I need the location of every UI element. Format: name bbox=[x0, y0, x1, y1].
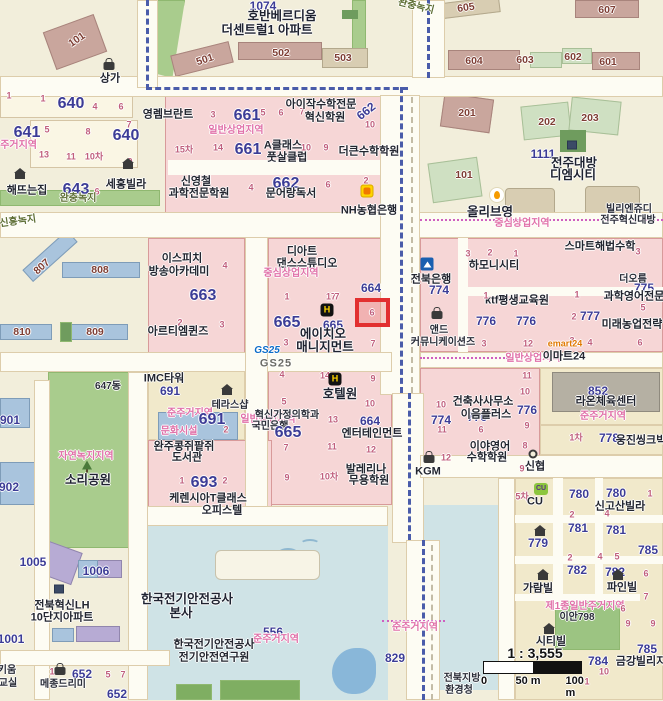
place-label: 스마트해법수학 bbox=[565, 242, 636, 253]
parcel-number: 777 bbox=[580, 310, 600, 322]
place-label: 수학학원 bbox=[467, 453, 507, 464]
place-label: 혁신가정의학과 bbox=[255, 411, 319, 421]
place-label: 전기안전연구원 bbox=[179, 653, 250, 664]
place-label: 엔터테인먼트 bbox=[342, 429, 403, 440]
place-label: 소리공원 bbox=[65, 474, 111, 487]
parcel-number: 14 bbox=[213, 144, 223, 153]
road-gs25[interactable] bbox=[0, 352, 392, 372]
place-label: 오피스텔 bbox=[202, 506, 242, 517]
building-number: 101 bbox=[455, 170, 473, 181]
road-water-top[interactable] bbox=[148, 506, 388, 526]
parcel-number: 11 bbox=[66, 153, 76, 162]
parcel-number: 4 bbox=[92, 103, 97, 112]
lh-building bbox=[76, 626, 120, 642]
place-label: 미래농업전략 bbox=[602, 320, 663, 331]
parcel-number: 4 bbox=[604, 510, 609, 519]
parcel-number: 6 bbox=[325, 181, 330, 190]
hotel-icon: H bbox=[329, 373, 342, 386]
scale-tick-0: 0 bbox=[481, 675, 487, 687]
boundary-dashed-line bbox=[146, 0, 149, 90]
parcel-number: 9 bbox=[323, 144, 328, 153]
lane[interactable] bbox=[515, 556, 663, 564]
parcel-number: 6 bbox=[643, 570, 648, 579]
parcel-number: 641 bbox=[14, 125, 41, 141]
parcel-number: 2 bbox=[571, 313, 576, 322]
parcel-number: 5 bbox=[260, 109, 265, 118]
parcel-number: 1006 bbox=[83, 565, 110, 577]
lane[interactable] bbox=[515, 594, 640, 601]
place-label: CU bbox=[527, 497, 543, 508]
boundary-dashed-line bbox=[146, 87, 408, 90]
place-label: 과학전문학원 bbox=[169, 189, 230, 200]
scale-tick-50: 50 m bbox=[515, 675, 540, 687]
place-label: 매니지먼트 bbox=[296, 341, 354, 354]
place-label: 세홍빌라 bbox=[106, 180, 146, 191]
map-canvas[interactable]: { "scale": {"ratio": "1 : 3,555", "tick0… bbox=[0, 0, 663, 700]
place-label: 호텔원 bbox=[323, 388, 358, 401]
place-label: 웅진씽크빅 bbox=[616, 436, 663, 447]
place-label: 디아트 bbox=[287, 247, 317, 258]
parcel-number: 776 bbox=[516, 315, 536, 327]
parcel-number: 10 bbox=[520, 388, 530, 397]
parcel-number: 779 bbox=[528, 537, 548, 549]
parcel-number: 829 bbox=[385, 652, 405, 664]
parcel-number: 782 bbox=[567, 564, 587, 576]
parcel-number: 4 bbox=[222, 262, 227, 271]
parcel-number: 12 bbox=[523, 340, 533, 349]
parcel-number: 691 bbox=[160, 385, 180, 397]
nh-icon bbox=[361, 185, 374, 198]
place-label: 디엠시티 bbox=[550, 169, 596, 182]
place-label: 키움 bbox=[0, 666, 16, 676]
place-label: 호반베르디움 bbox=[247, 10, 316, 23]
bldg-icon bbox=[54, 585, 64, 594]
parcel-number: 7 bbox=[283, 444, 288, 453]
pond bbox=[332, 648, 376, 694]
campus-building bbox=[215, 550, 320, 580]
place-label: 전북지방 bbox=[444, 674, 481, 684]
place-label: 이스피치 bbox=[162, 254, 202, 265]
house-icon bbox=[123, 163, 133, 169]
parcel-number: 652 bbox=[107, 688, 127, 700]
place-label: NH농협은행 bbox=[341, 206, 397, 217]
place-label: 신협 bbox=[525, 462, 545, 473]
parcel-number: 12 bbox=[366, 446, 376, 455]
parcel-number: 780 bbox=[606, 487, 626, 499]
house-icon bbox=[538, 574, 548, 580]
place-label: 이안798 bbox=[559, 613, 594, 623]
parcel-number: 11 bbox=[327, 443, 337, 452]
parcel-number: 3 bbox=[465, 250, 470, 259]
place-label: A클래스 bbox=[264, 141, 302, 152]
zone-label: 중심상업지역 bbox=[494, 219, 549, 229]
green-plot bbox=[60, 322, 72, 342]
hotel-icon: H bbox=[321, 304, 334, 317]
boundary-dashed-line bbox=[408, 393, 411, 540]
place-label: 파인빌 bbox=[607, 583, 637, 594]
building bbox=[530, 52, 562, 68]
parcel-number: 5 bbox=[44, 126, 49, 135]
parcel-number: 4 bbox=[597, 553, 602, 562]
parcel-number: 1 bbox=[647, 490, 652, 499]
parcel-number: 3 bbox=[635, 248, 640, 257]
place-label: 더큰수학학원 bbox=[339, 147, 400, 158]
parcel-number: 774 bbox=[429, 284, 449, 296]
place-label: KGM bbox=[415, 467, 441, 478]
house-icon bbox=[544, 628, 554, 634]
parcel-number: 640 bbox=[58, 96, 85, 112]
place-label: 한국전기안전공사 bbox=[141, 593, 233, 606]
parcel-number: 661 bbox=[234, 108, 261, 124]
parcel-number: 6 bbox=[620, 605, 625, 614]
parcel-number: 6 bbox=[278, 109, 283, 118]
place-label: 10단지아파트 bbox=[31, 613, 94, 624]
parcel-number: 901 bbox=[0, 414, 20, 426]
lane[interactable] bbox=[553, 478, 563, 610]
parcel-number: 10 bbox=[365, 400, 375, 409]
parcel-number: 9 bbox=[370, 375, 375, 384]
place-label: 케렌시아T클래스 bbox=[169, 494, 247, 505]
lh-building bbox=[52, 628, 74, 642]
parcel-number: 9 bbox=[625, 620, 630, 629]
place-label: IMC타워 bbox=[144, 374, 184, 385]
scale-indicator: 1 : 3,555 0 50 m 100 m bbox=[480, 644, 600, 690]
parcel-number: 1 bbox=[179, 477, 184, 486]
parcel-number: 691 bbox=[199, 412, 226, 428]
scale-ratio: 1 : 3,555 bbox=[507, 645, 562, 661]
parcel-number: 781 bbox=[568, 522, 588, 534]
bag-icon bbox=[432, 311, 443, 319]
place-label: 무용학원 bbox=[349, 476, 389, 487]
emart24-logo: emart24 bbox=[548, 340, 583, 349]
building-number: 607 bbox=[598, 5, 616, 16]
gs25-logo: GS25 bbox=[254, 346, 280, 356]
bag-icon bbox=[55, 667, 66, 675]
place-label: 금강빌리지 bbox=[616, 657, 663, 668]
building-number: 604 bbox=[465, 56, 483, 67]
parcel-number: 3 bbox=[481, 340, 486, 349]
parcel-number: 665 bbox=[274, 315, 301, 331]
place-label: 이마트24 bbox=[543, 352, 586, 363]
parcel-number: 640 bbox=[113, 128, 140, 144]
wave-mark bbox=[300, 539, 320, 549]
place-label: 신영철 bbox=[181, 177, 211, 188]
parcel-number: 9 bbox=[524, 422, 529, 431]
green-plot bbox=[342, 10, 358, 19]
parcel-number: 781 bbox=[606, 524, 626, 536]
parcel-number: 2 bbox=[487, 249, 492, 258]
parcel-number: 9 bbox=[519, 465, 524, 474]
parcel-number: 4 bbox=[587, 339, 592, 348]
parcel-number: 2 bbox=[223, 426, 228, 435]
parcel-number: 5 bbox=[281, 398, 286, 407]
parcel-number: 664 bbox=[361, 282, 381, 294]
parcel-number: 4 bbox=[248, 184, 253, 193]
building-number: 809 bbox=[86, 327, 104, 338]
zone-label: 완충녹지 bbox=[60, 194, 97, 204]
parcel-number: 5 bbox=[614, 553, 619, 562]
parcel-number: 15차 bbox=[175, 146, 193, 155]
road-bottom-left[interactable] bbox=[0, 650, 170, 666]
parcel-number: 2 bbox=[569, 511, 574, 520]
building bbox=[448, 50, 520, 70]
building-number: 203 bbox=[581, 113, 599, 124]
zone-label: 제1종일반주거지역 bbox=[545, 602, 624, 612]
house-icon bbox=[613, 574, 623, 580]
parcel-number: 664 bbox=[360, 415, 380, 427]
place-label: 건축사사무소 bbox=[453, 397, 514, 408]
sports-field bbox=[176, 684, 212, 700]
building-number: 603 bbox=[516, 55, 534, 66]
parcel-number: 665 bbox=[275, 425, 302, 441]
parcel-number: 4 bbox=[279, 371, 284, 380]
place-label: 앤드 bbox=[430, 326, 448, 336]
parcel-number: 1 bbox=[483, 292, 488, 301]
road-mid-horizontal[interactable] bbox=[0, 212, 663, 238]
parcel-number: 5 bbox=[105, 671, 110, 680]
road-center-line bbox=[411, 97, 413, 393]
parcel-number: 1 bbox=[6, 92, 11, 101]
parcel-number: 902 bbox=[0, 481, 19, 493]
house-icon bbox=[222, 389, 232, 395]
parcel-number: 693 bbox=[191, 475, 218, 491]
parcel-number: 10차 bbox=[85, 153, 103, 162]
parcel-number: 3 bbox=[283, 339, 288, 348]
place-label: 전북혁신LH bbox=[34, 601, 89, 612]
zone-label: 문화시설 bbox=[161, 427, 198, 437]
place-label: 커뮤니케이션즈 bbox=[411, 338, 475, 348]
place-label: 올리브영 bbox=[467, 206, 513, 219]
house-icon bbox=[535, 530, 545, 536]
parcel-number: 2 bbox=[222, 477, 227, 486]
parcel-number: 13 bbox=[328, 416, 338, 425]
place-label: 가람빌 bbox=[523, 584, 553, 595]
parcel-number: 11 bbox=[522, 372, 532, 381]
parcel-number: 12 bbox=[441, 454, 451, 463]
building-number: 601 bbox=[599, 57, 617, 68]
place-label: 하모니시티 bbox=[469, 261, 520, 272]
parcel-number: 13 bbox=[39, 151, 49, 160]
place-label: GS25 bbox=[260, 359, 292, 370]
place-label: 더센트럴1 아파트 bbox=[222, 24, 313, 37]
scale-bar-dark bbox=[533, 662, 582, 673]
place-label: 라온체육센터 bbox=[576, 397, 637, 408]
cu-icon: CU bbox=[534, 483, 548, 495]
parcel-number: 3 bbox=[219, 321, 224, 330]
jb-icon bbox=[421, 258, 434, 271]
lane[interactable] bbox=[595, 478, 603, 595]
building-number: 503 bbox=[334, 53, 352, 64]
oy-icon bbox=[489, 187, 505, 203]
parcel-number: 1 bbox=[284, 293, 289, 302]
parcel-number: 7 bbox=[126, 121, 131, 130]
place-label: 아이작수학전문 bbox=[286, 100, 357, 111]
parcel-number: 10 bbox=[599, 668, 609, 677]
zone-dotted-line bbox=[420, 357, 508, 359]
place-label: 빌리엔쥬디 bbox=[606, 205, 652, 215]
place-label: 문어랑독서 bbox=[266, 189, 317, 200]
parcel-number: 2 bbox=[567, 554, 572, 563]
parcel-number: 776 bbox=[517, 404, 537, 416]
boundary-dashed-line bbox=[400, 87, 403, 393]
parcel-number: 9 bbox=[284, 474, 289, 483]
building-number: 502 bbox=[272, 48, 290, 59]
building-number: 202 bbox=[538, 117, 556, 128]
parcel-number: 3 bbox=[210, 111, 215, 120]
parcel-number: 11 bbox=[437, 426, 447, 435]
parcel-number: 1005 bbox=[20, 556, 47, 568]
flower-icon bbox=[529, 450, 538, 459]
building-number: 201 bbox=[458, 108, 476, 119]
parcel-number: 1 bbox=[574, 291, 579, 300]
house-icon bbox=[15, 173, 25, 179]
parcel-number: 8 bbox=[522, 442, 527, 451]
parcel-number: 1 bbox=[40, 95, 45, 104]
zone-label: 중심상업지역 bbox=[263, 269, 318, 279]
place-label: 과학영어전문 bbox=[604, 292, 663, 303]
place-label: 테라스샵 bbox=[212, 401, 249, 411]
parcel-number: 776 bbox=[476, 315, 496, 327]
place-label: 한국전기안전공사 bbox=[174, 640, 255, 651]
parcel-number: 7 bbox=[120, 671, 125, 680]
place-label: 해뜨는집 bbox=[7, 186, 47, 197]
place-label: 상가 bbox=[100, 74, 120, 85]
parcel-number: 9 bbox=[650, 620, 655, 629]
bag-icon bbox=[424, 455, 435, 463]
tree-icon bbox=[82, 461, 92, 470]
parcel-number: 1001 bbox=[0, 633, 24, 645]
bldg-icon bbox=[567, 141, 577, 150]
sports-field bbox=[220, 680, 300, 700]
place-label: 신고산빌라 bbox=[595, 502, 646, 513]
parcel-number: 7 bbox=[334, 293, 339, 302]
place-label: 혁신학원 bbox=[305, 113, 345, 124]
parcel-number: 6 bbox=[637, 339, 642, 348]
parcel-number: 6 bbox=[369, 309, 374, 318]
place-label: 647동 bbox=[95, 382, 121, 392]
place-label: 메종드리미 bbox=[40, 680, 86, 690]
parcel-number: 661 bbox=[235, 142, 262, 158]
parcel-number: 10 bbox=[365, 121, 375, 130]
place-label: ktf평생교육원 bbox=[485, 296, 549, 307]
zone-label: 준주거지역 bbox=[392, 623, 438, 633]
place-label: 환경청 bbox=[445, 686, 473, 696]
zone-label: 일반상업지역 bbox=[208, 126, 263, 136]
road-663-665[interactable] bbox=[245, 238, 268, 525]
building-number: 808 bbox=[91, 265, 109, 276]
parcel-number: 8 bbox=[85, 128, 90, 137]
parcel-number: 1차 bbox=[569, 434, 582, 443]
parcel-number: 5 bbox=[640, 304, 645, 313]
place-label: 풋살클럽 bbox=[267, 153, 307, 164]
place-label: 영렘브란트 bbox=[143, 110, 194, 121]
parcel-number: 10차 bbox=[320, 473, 338, 482]
parcel-number: 7 bbox=[643, 593, 648, 602]
place-label: 전주혁신대방 bbox=[600, 216, 655, 226]
zone-label: 준주거지역 bbox=[0, 141, 37, 151]
place-label: 본사 bbox=[169, 607, 192, 620]
place-label: 이음플러스 bbox=[461, 410, 512, 421]
scale-bar bbox=[483, 661, 582, 674]
parcel-number: 6 bbox=[478, 426, 483, 435]
parcel-number: 6 bbox=[118, 103, 123, 112]
place-label: 아르티엠퀸즈 bbox=[148, 327, 209, 338]
bag-icon bbox=[104, 62, 115, 70]
scale-tick-100: 100 m bbox=[566, 675, 589, 699]
parcel-number: 663 bbox=[190, 288, 217, 304]
place-label: 도서관 bbox=[172, 453, 202, 464]
zone-label: 준주거지역 bbox=[253, 635, 299, 645]
building-number: 605 bbox=[457, 2, 476, 15]
building-number: 810 bbox=[13, 327, 31, 338]
building-number: 602 bbox=[564, 52, 582, 63]
parcel-number: 780 bbox=[569, 488, 589, 500]
parcel-number: 10 bbox=[436, 401, 446, 410]
parcel-number: 1 bbox=[513, 250, 518, 259]
place-label: 에이치오 bbox=[300, 328, 346, 341]
lane[interactable] bbox=[515, 515, 663, 523]
parcel-number: 7 bbox=[370, 340, 375, 349]
parcel-number: 785 bbox=[638, 544, 658, 556]
parcel-number: 785 bbox=[637, 643, 657, 655]
parcel-number: 10 bbox=[301, 144, 311, 153]
place-label: 방송아카데미 bbox=[149, 267, 210, 278]
zone-label: 준주거지역 bbox=[580, 412, 626, 422]
place-label: 교실 bbox=[0, 679, 17, 689]
